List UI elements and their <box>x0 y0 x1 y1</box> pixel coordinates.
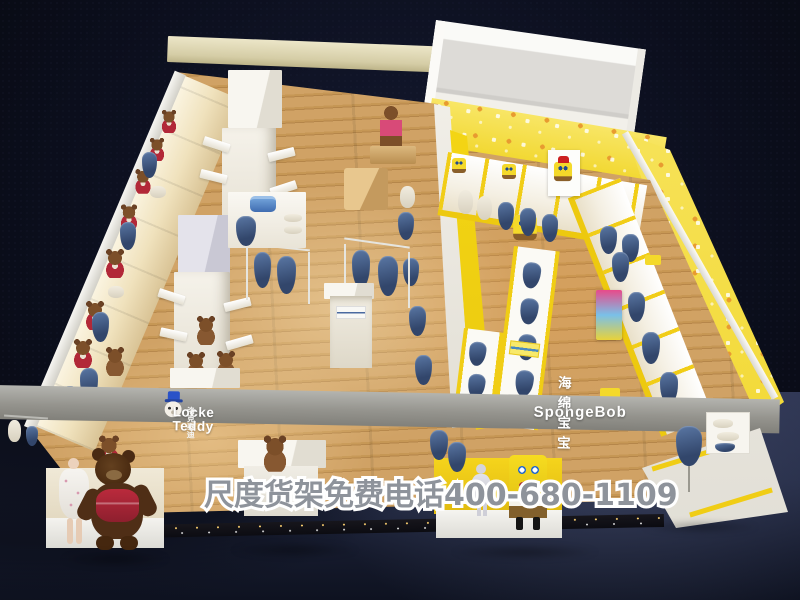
spongebob-plush <box>452 158 466 173</box>
floor-reflection <box>640 520 760 534</box>
hanging-clothes <box>458 190 473 214</box>
teddy-bear-plush <box>104 346 126 376</box>
locke-teddy-sign: Locke Teddy 洛克泰迪 <box>161 390 194 421</box>
large-teddy-bear <box>88 448 148 550</box>
teddy-bear-plush <box>195 315 217 345</box>
floor-reflection <box>450 544 600 560</box>
wood-pedestal <box>370 146 416 164</box>
teddy-bear-plush <box>72 338 94 368</box>
teddy-bear-plush <box>160 109 178 133</box>
clothing-rack-leg <box>246 248 248 300</box>
tower-base-shelf <box>170 368 240 388</box>
blue-bag <box>250 196 276 212</box>
clothing-rack-leg <box>408 252 410 308</box>
floor-reflection <box>60 550 170 568</box>
folded-clothes <box>717 432 739 441</box>
display-cube-lavender <box>178 215 230 275</box>
gondola-sign <box>336 306 366 319</box>
folded-clothes <box>150 186 166 198</box>
hanging-clothes <box>477 196 492 220</box>
denim-garment <box>521 261 542 289</box>
folded-clothes <box>108 286 124 298</box>
shelf-box <box>706 412 750 454</box>
folded-clothes <box>713 419 733 428</box>
hanging-clothes <box>8 420 21 442</box>
brand-name-chinese: 海绵宝宝 <box>557 371 579 451</box>
display-cube <box>228 70 282 128</box>
spongebob-poster-art <box>554 162 572 182</box>
yellow-box <box>645 255 661 265</box>
hanging-clothes <box>400 186 415 208</box>
wood-table <box>344 168 388 210</box>
red-hat <box>558 156 569 163</box>
watermark-text: 尺度货架免费电话400-680-1109 <box>204 470 678 514</box>
teddy-bear-pink-shirt <box>380 106 402 148</box>
spongebob-sign: SpongeBob 海绵宝宝 <box>533 395 534 427</box>
folded-denim <box>715 443 735 452</box>
floor-reflection <box>230 542 360 558</box>
folded-clothes <box>284 214 302 222</box>
spongebob-plush <box>502 164 516 179</box>
teddy-bear-on-table <box>261 434 289 472</box>
brand-name-chinese: 洛克泰迪 <box>187 408 201 440</box>
denim-garment <box>514 369 535 397</box>
clothing-rack-leg <box>308 252 310 304</box>
denim-garment <box>468 341 488 367</box>
brand-name: SpongeBob <box>534 403 627 420</box>
teddy-bear-plush <box>104 248 126 278</box>
store-3d-render: Locke Teddy 洛克泰迪 SpongeBob 海绵宝宝 <box>0 0 800 600</box>
promo-card <box>509 340 540 358</box>
folded-clothes <box>284 226 302 234</box>
character-poster <box>596 290 622 340</box>
denim-garment <box>519 297 540 325</box>
